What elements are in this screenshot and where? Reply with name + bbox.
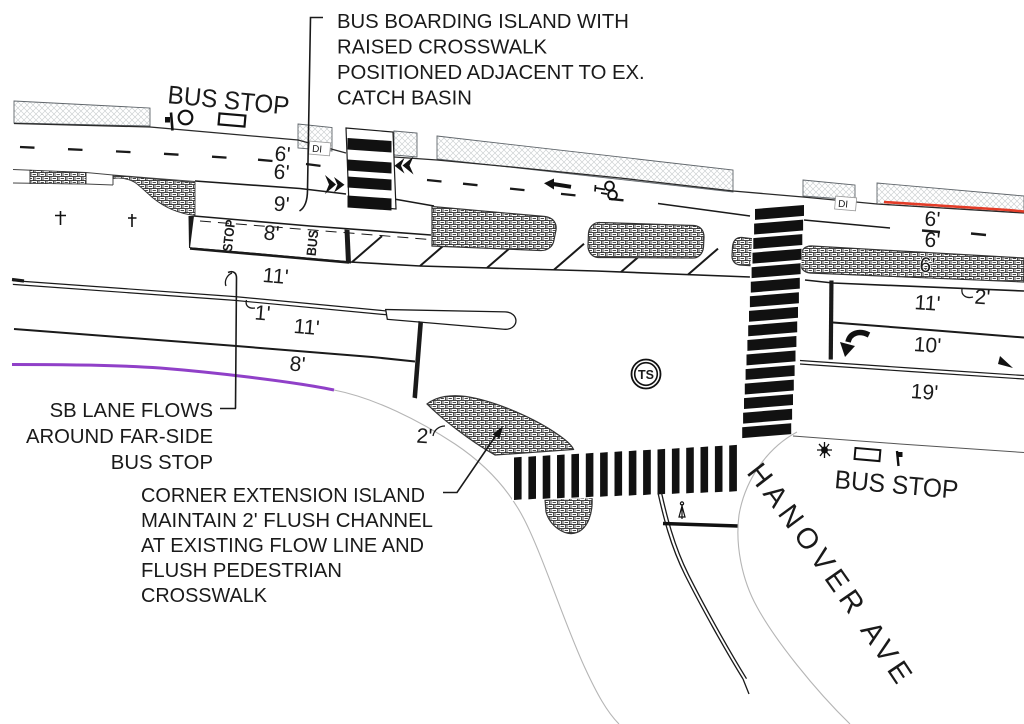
svg-text:2': 2'	[974, 285, 991, 309]
svg-text:8': 8'	[289, 352, 307, 376]
svg-text:CATCH BASIN: CATCH BASIN	[337, 88, 472, 110]
svg-text:6': 6'	[273, 160, 291, 184]
svg-text:BUS: BUS	[304, 229, 322, 256]
svg-text:19': 19'	[910, 380, 939, 405]
svg-text:MAINTAIN 2' FLUSH CHANNEL: MAINTAIN 2' FLUSH CHANNEL	[141, 510, 433, 532]
svg-text:6': 6'	[919, 253, 936, 277]
svg-text:1': 1'	[254, 301, 272, 325]
svg-text:SB LANE FLOWS: SB LANE FLOWS	[50, 400, 213, 422]
svg-text:CROSSWALK: CROSSWALK	[141, 585, 267, 607]
svg-text:AT EXISTING FLOW LINE AND: AT EXISTING FLOW LINE AND	[141, 535, 424, 557]
svg-text:POSITIONED ADJACENT TO EX.: POSITIONED ADJACENT TO EX.	[337, 62, 645, 84]
svg-text:2': 2'	[416, 424, 433, 448]
svg-text:AROUND FAR-SIDE: AROUND FAR-SIDE	[26, 426, 213, 448]
svg-text:10': 10'	[913, 333, 942, 358]
svg-text:CORNER EXTENSION ISLAND: CORNER EXTENSION ISLAND	[141, 485, 425, 507]
svg-text:11': 11'	[914, 291, 941, 316]
svg-text:BUS STOP: BUS STOP	[111, 452, 213, 474]
svg-text:8': 8'	[263, 221, 281, 245]
svg-text:9': 9'	[273, 192, 291, 216]
svg-text:11': 11'	[293, 315, 321, 340]
svg-text:TS: TS	[638, 368, 654, 382]
svg-text:DI: DI	[838, 199, 849, 211]
svg-text:FLUSH PEDESTRIAN: FLUSH PEDESTRIAN	[141, 560, 342, 582]
svg-text:11': 11'	[262, 264, 290, 289]
svg-text:BUS BOARDING ISLAND WITH: BUS BOARDING ISLAND WITH	[337, 11, 629, 33]
svg-text:RAISED CROSSWALK: RAISED CROSSWALK	[337, 37, 547, 59]
svg-text:6': 6'	[924, 228, 941, 252]
svg-text:DI: DI	[312, 144, 323, 156]
